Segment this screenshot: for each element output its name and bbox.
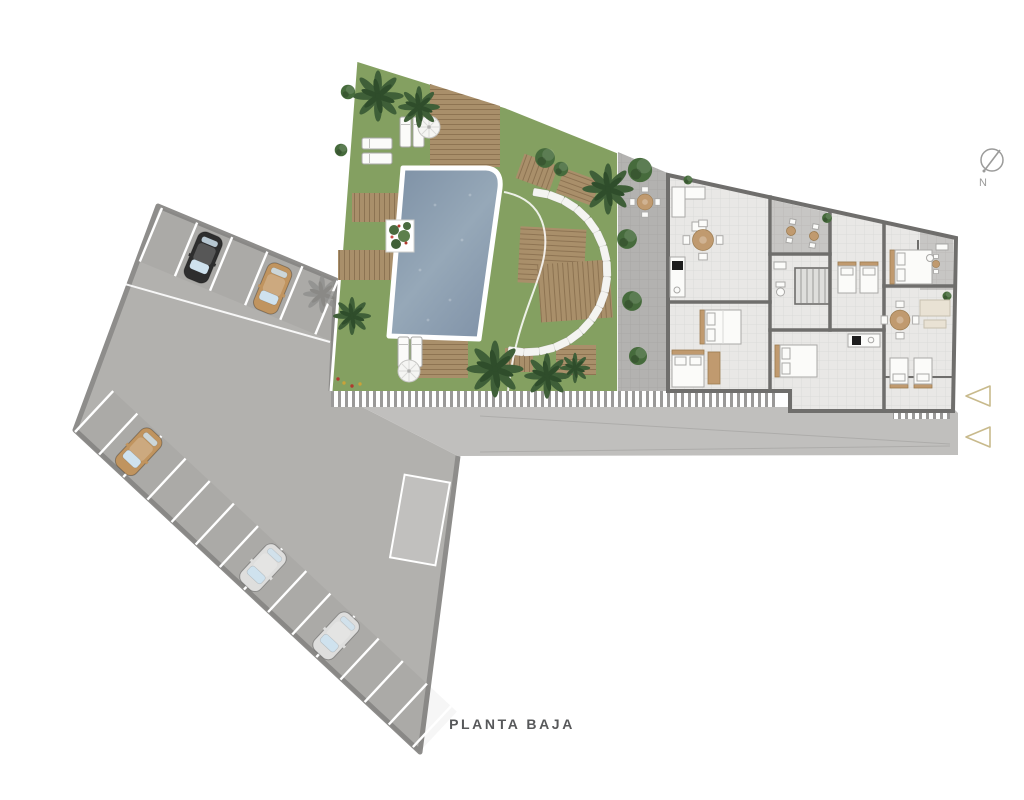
stairwell xyxy=(795,268,829,304)
bush-icon xyxy=(617,229,637,249)
umbrella-icon xyxy=(398,360,420,382)
sidewalk-hatch xyxy=(331,391,778,407)
sofa xyxy=(920,300,950,316)
compass: N xyxy=(979,149,1003,189)
bed xyxy=(672,350,720,387)
bush-icon xyxy=(628,158,652,182)
floor-plan: N PLANTA BAJA xyxy=(0,0,1024,800)
bed xyxy=(775,345,817,377)
planter xyxy=(386,220,414,252)
terrace-plant xyxy=(822,213,832,223)
bush-icon xyxy=(622,291,642,311)
bed xyxy=(860,262,878,293)
bed xyxy=(700,310,741,344)
garden xyxy=(331,60,670,399)
bed xyxy=(890,250,932,284)
bush-icon xyxy=(629,347,647,365)
kitchen xyxy=(848,334,880,347)
building xyxy=(668,175,956,411)
bed xyxy=(890,358,908,388)
bench xyxy=(708,352,720,384)
terrace-plant xyxy=(684,176,693,185)
bed xyxy=(914,358,932,388)
entrance-arrows xyxy=(966,386,990,447)
compass-needle xyxy=(984,150,1000,171)
palm-shadow-icon xyxy=(303,275,341,313)
terrace-plant xyxy=(943,292,952,301)
sofa xyxy=(672,187,685,217)
bed xyxy=(838,262,856,293)
page-title: PLANTA BAJA xyxy=(0,716,1024,732)
kitchen xyxy=(670,257,685,297)
compass-label: N xyxy=(979,177,987,189)
pool xyxy=(389,168,500,339)
floor-plan-svg: N xyxy=(0,0,1024,800)
entrance-arrow-1 xyxy=(966,386,990,406)
entrance-arrow-2 xyxy=(966,427,990,447)
